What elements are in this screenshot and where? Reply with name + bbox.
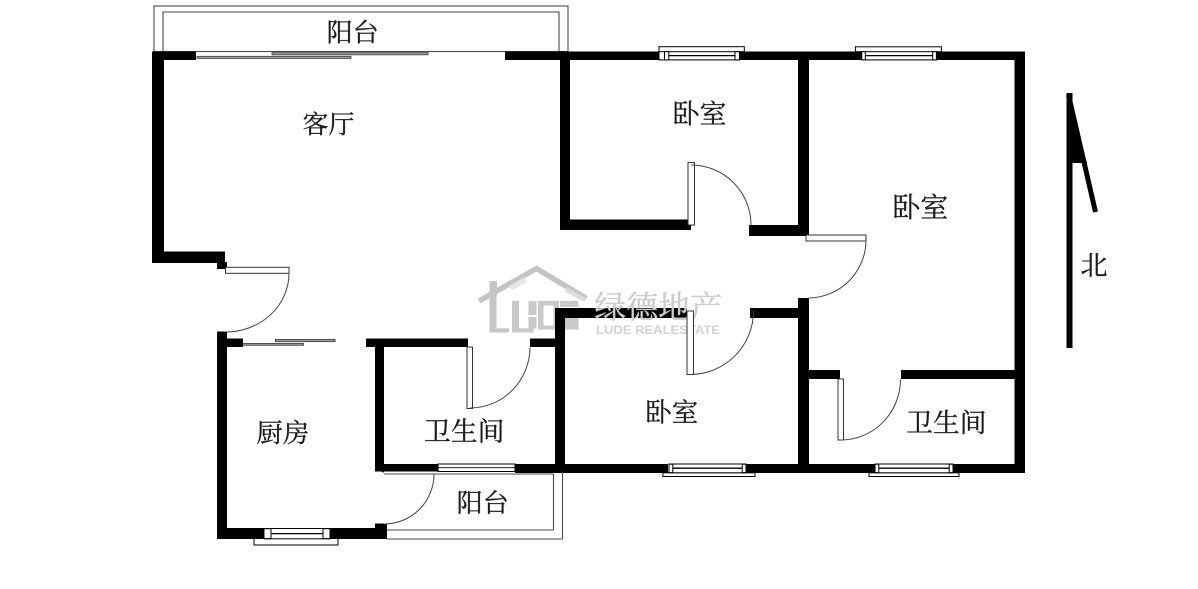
svg-text:LUDE REALESTATE: LUDE REALESTATE <box>596 323 720 337</box>
